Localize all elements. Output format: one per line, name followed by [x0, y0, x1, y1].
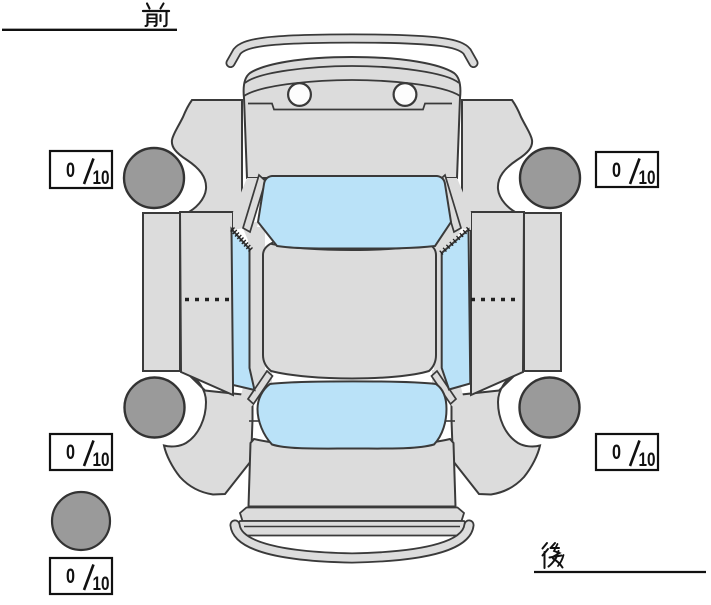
svg-text:10: 10 [93, 573, 110, 595]
svg-text:10: 10 [93, 167, 110, 189]
svg-text:0: 0 [612, 159, 621, 182]
svg-text:0: 0 [66, 159, 75, 182]
svg-text:0: 0 [612, 441, 621, 464]
svg-text:10: 10 [639, 449, 656, 471]
svg-text:0: 0 [66, 565, 75, 588]
svg-text:10: 10 [93, 449, 110, 471]
svg-text:0: 0 [66, 441, 75, 464]
svg-text:10: 10 [639, 167, 656, 189]
